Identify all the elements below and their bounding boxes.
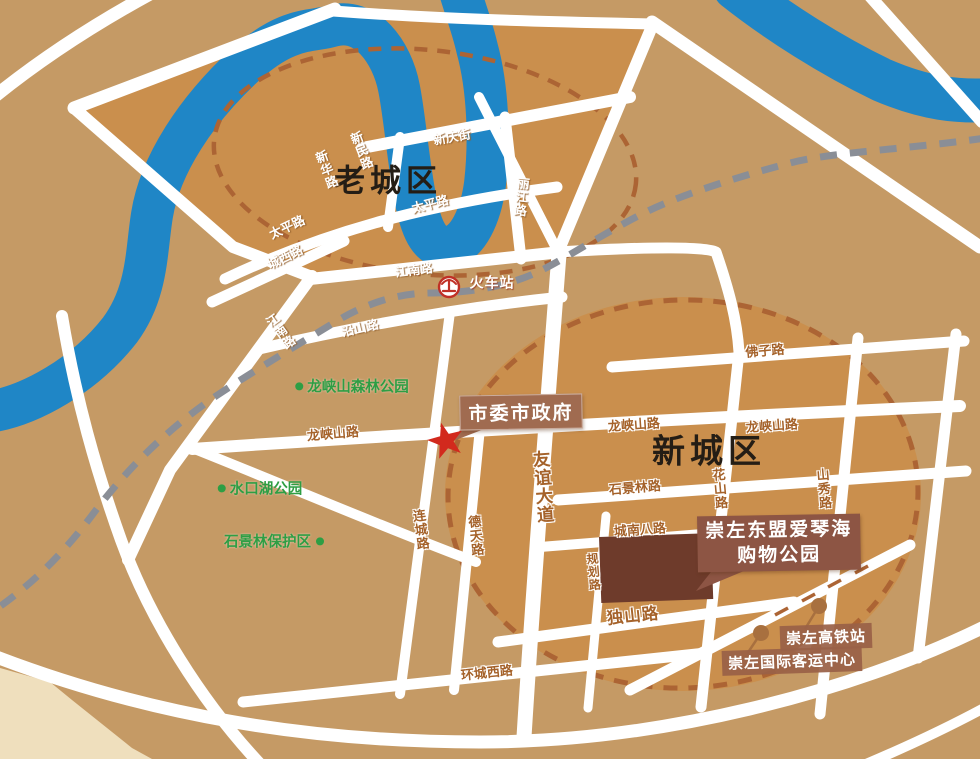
park-label: 龙峡山森林公园 [307,379,409,395]
government-callout: 市委市政府 [459,393,583,430]
old-town-label: 老城区 [334,166,442,199]
park-shuikouhu: 水口湖公园 [218,482,303,497]
park-label: 水口湖公园 [230,481,303,497]
shopping-park-building [599,533,713,603]
train-station-icon [439,277,459,297]
road-label-shanxiu: 山秀路 [813,467,830,510]
new-town-label: 新城区 [652,435,766,470]
park-label: 石景林保护区 [224,534,311,550]
shopping-park-line1: 崇左东盟爱琴海 [705,517,852,545]
train-station-label: 火车站 [470,277,515,292]
park-longxiashan-forest: 龙峡山森林公园 [295,380,409,395]
road-label-fozi: 佛子路 [745,344,785,361]
park-dot-icon [218,484,226,492]
shopping-park-line2: 购物公园 [706,542,853,570]
road-label-guihua: 规划路 [585,552,601,592]
city-map: 老城区 新城区 新华路 新民路 新庆街 太平路 太平路 丽江路 城西路 江南路 … [0,0,980,759]
park-dot-icon [316,537,324,545]
park-dot-icon [295,382,303,390]
shopping-park-callout: 崇左东盟爱琴海 购物公园 [697,514,861,573]
park-shijinglin-reserve: 石景林保护区 [224,535,324,550]
passenger-center-label: 崇左国际客运中心 [722,646,863,676]
road-label-huashan: 花山路 [709,467,726,510]
